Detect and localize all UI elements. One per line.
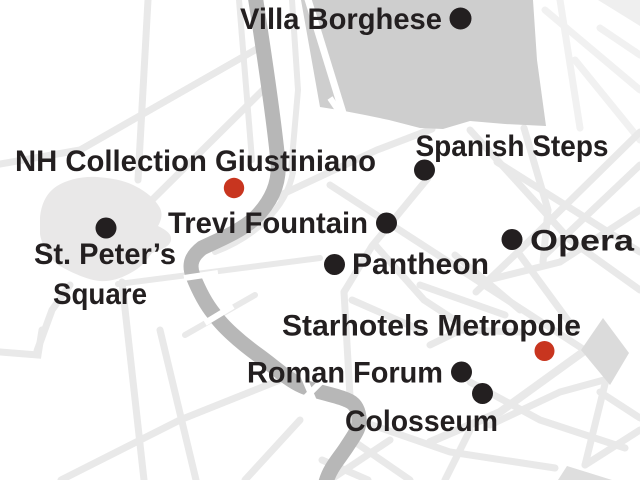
svg-text:Pantheon: Pantheon <box>352 248 489 281</box>
svg-text:Opera: Opera <box>530 225 634 258</box>
svg-text:Starhotels Metropole: Starhotels Metropole <box>282 310 581 343</box>
svg-text:Spanish Steps: Spanish Steps <box>416 130 609 163</box>
svg-text:Square: Square <box>53 278 147 311</box>
svg-text:Villa Borghese: Villa Borghese <box>240 3 442 36</box>
svg-text:NH Collection Giustiniano: NH Collection Giustiniano <box>15 145 376 178</box>
svg-text:St. Peter’s: St. Peter’s <box>34 238 176 271</box>
svg-text:Trevi Fountain: Trevi Fountain <box>168 207 368 240</box>
svg-text:Colosseum: Colosseum <box>345 405 498 438</box>
svg-text:Roman Forum: Roman Forum <box>247 357 443 390</box>
